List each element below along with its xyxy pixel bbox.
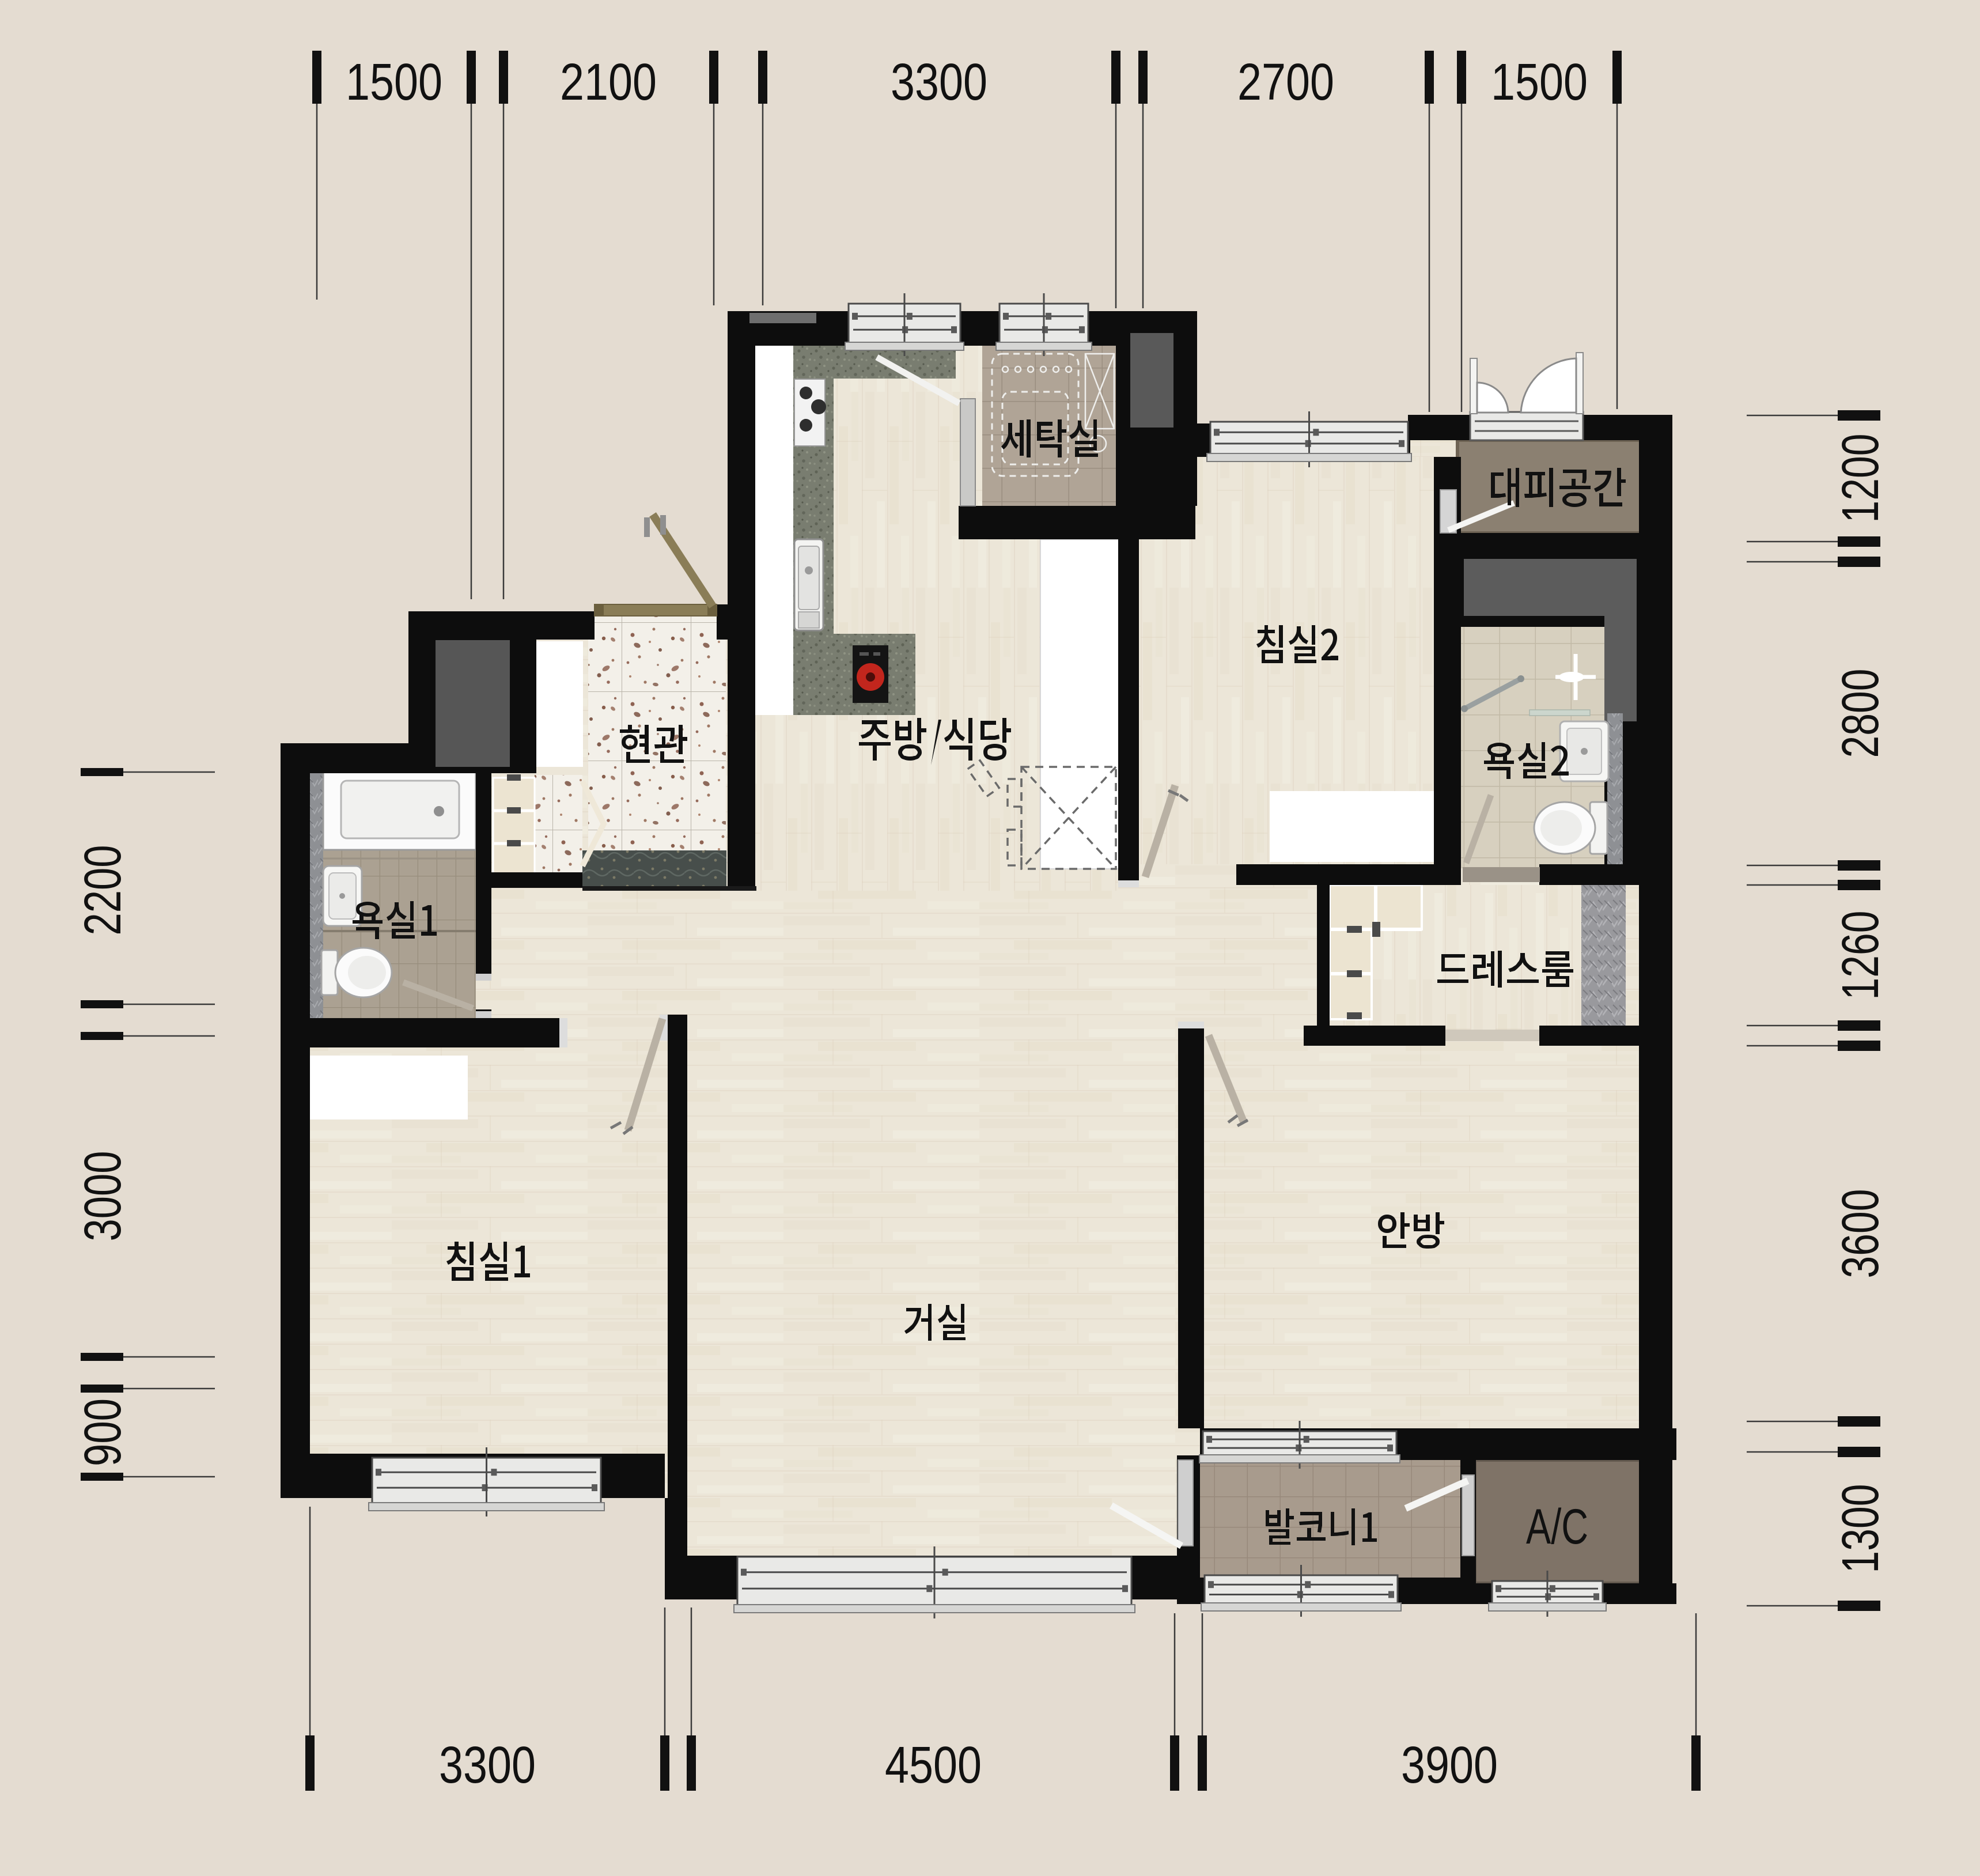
svg-text:A/C: A/C <box>1526 1499 1588 1554</box>
svg-text:1300: 1300 <box>1832 1484 1890 1574</box>
svg-text:1500: 1500 <box>346 54 442 111</box>
svg-text:1260: 1260 <box>1832 911 1890 1000</box>
svg-text:1500: 1500 <box>1491 54 1588 111</box>
svg-text:3000: 3000 <box>74 1151 132 1242</box>
svg-text:3300: 3300 <box>439 1737 536 1794</box>
svg-text:1200: 1200 <box>1832 434 1890 523</box>
svg-text:4500: 4500 <box>885 1737 982 1794</box>
svg-text:3600: 3600 <box>1832 1189 1890 1279</box>
svg-text:900: 900 <box>74 1398 132 1466</box>
svg-text:2800: 2800 <box>1832 669 1890 758</box>
svg-text:3300: 3300 <box>891 54 987 111</box>
svg-text:2100: 2100 <box>560 54 657 111</box>
svg-text:2200: 2200 <box>74 845 132 936</box>
svg-text:3900: 3900 <box>1401 1737 1498 1794</box>
svg-text:2700: 2700 <box>1237 54 1334 111</box>
